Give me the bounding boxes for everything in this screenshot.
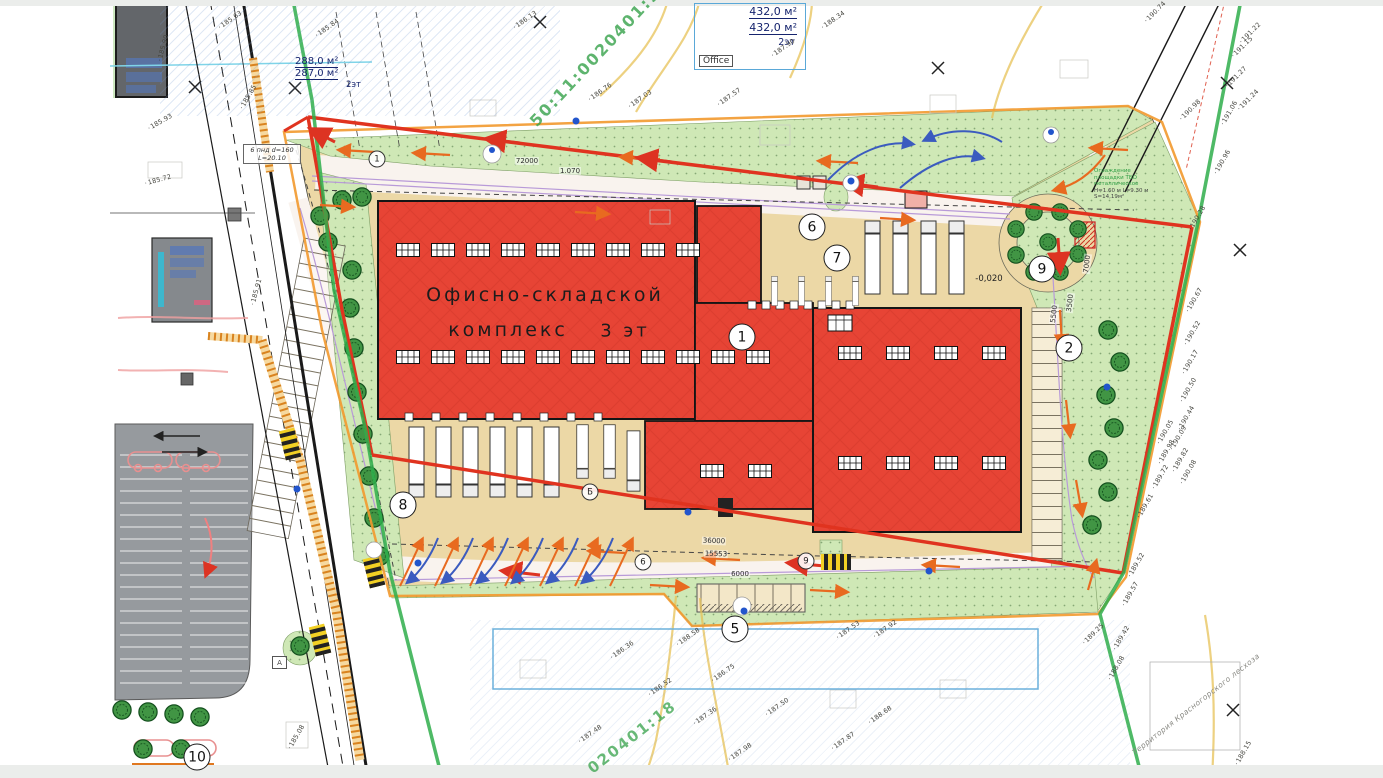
pipe-note-line: 6 пнд d=160: [244, 146, 300, 154]
page-edge-top: [0, 0, 1383, 6]
site-number-marker: 2: [1056, 335, 1083, 362]
hatch-zone-s: [470, 620, 1130, 766]
axis-label: Б: [587, 487, 593, 497]
area-value: 432,0 м²: [749, 21, 797, 35]
site-number-marker: 7: [824, 245, 851, 272]
dimension-label: 36000: [702, 537, 727, 546]
marker-number: 10: [188, 749, 206, 765]
marker-number: 1: [738, 329, 747, 345]
area-value: 432,0 м²: [749, 5, 797, 19]
site-number-marker: 10: [184, 744, 211, 771]
area-value: 288,0 м²: [295, 56, 338, 68]
floors-value: 2эт: [295, 80, 361, 90]
pipe-note-line: L=20.10: [244, 154, 300, 162]
pipe-note-box: 6 пнд d=160 L=20.10: [243, 144, 301, 164]
building-title-line3: 3 эт: [600, 321, 650, 342]
dimension-label: 1.070: [559, 167, 581, 175]
axis-bubble: 6: [635, 554, 652, 571]
area-note-box-top: 432,0 м² 432,0 м² 2эт Office: [694, 3, 806, 70]
axis-bubble: 1: [369, 151, 386, 168]
page-edge-bottom: [0, 765, 1383, 778]
dimension-label: 72000: [515, 157, 539, 165]
stair-symbol: [718, 498, 733, 517]
public-parking-lot: [115, 424, 253, 756]
building-title-line2: комплекс: [448, 319, 568, 341]
axis-bubble: 9: [798, 553, 815, 570]
legend-table-symbol: [828, 315, 852, 331]
axis-label: 6: [640, 557, 645, 567]
office-label: Office: [699, 55, 733, 67]
site-number-marker: 8: [390, 492, 417, 519]
marker-number: 7: [833, 250, 842, 266]
fence-note: Ограждение площадки ТБО металлическое H=…: [1094, 168, 1168, 201]
marker-number: 9: [1038, 261, 1047, 277]
axis-label: 9: [803, 556, 808, 566]
marker-number: 2: [1065, 340, 1074, 356]
utility-box: [181, 373, 193, 385]
level-label: -0,020: [975, 274, 1002, 284]
marker-number: 5: [731, 621, 740, 637]
building-title-line1: Офисно-складской: [426, 284, 664, 306]
site-plan-scan: Офисно-складской комплекс 3 эт 50:11:002…: [0, 0, 1383, 778]
axis-label: 1: [374, 154, 379, 164]
markup-scribbles: [118, 317, 248, 372]
site-number-marker: 5: [722, 616, 749, 643]
utility-box: [228, 208, 241, 221]
area-note-box-left: 288,0 м² 287,0 м² 2эт: [295, 56, 361, 90]
axis-bubble: Б: [582, 484, 599, 501]
site-number-marker: 1: [729, 324, 756, 351]
dimension-label: 15553: [704, 550, 729, 559]
marker-number: 8: [399, 497, 408, 513]
neighbor-building-w: [152, 238, 212, 322]
dimension-label: 6000: [730, 570, 750, 578]
area-a-label: А: [272, 656, 287, 669]
area-value: 287,0 м²: [295, 68, 338, 80]
marker-number: 6: [808, 219, 817, 235]
site-number-marker: 6: [799, 214, 826, 241]
site-number-marker: 9: [1029, 256, 1056, 283]
fence-note-line: S=14,19м²: [1094, 194, 1168, 201]
